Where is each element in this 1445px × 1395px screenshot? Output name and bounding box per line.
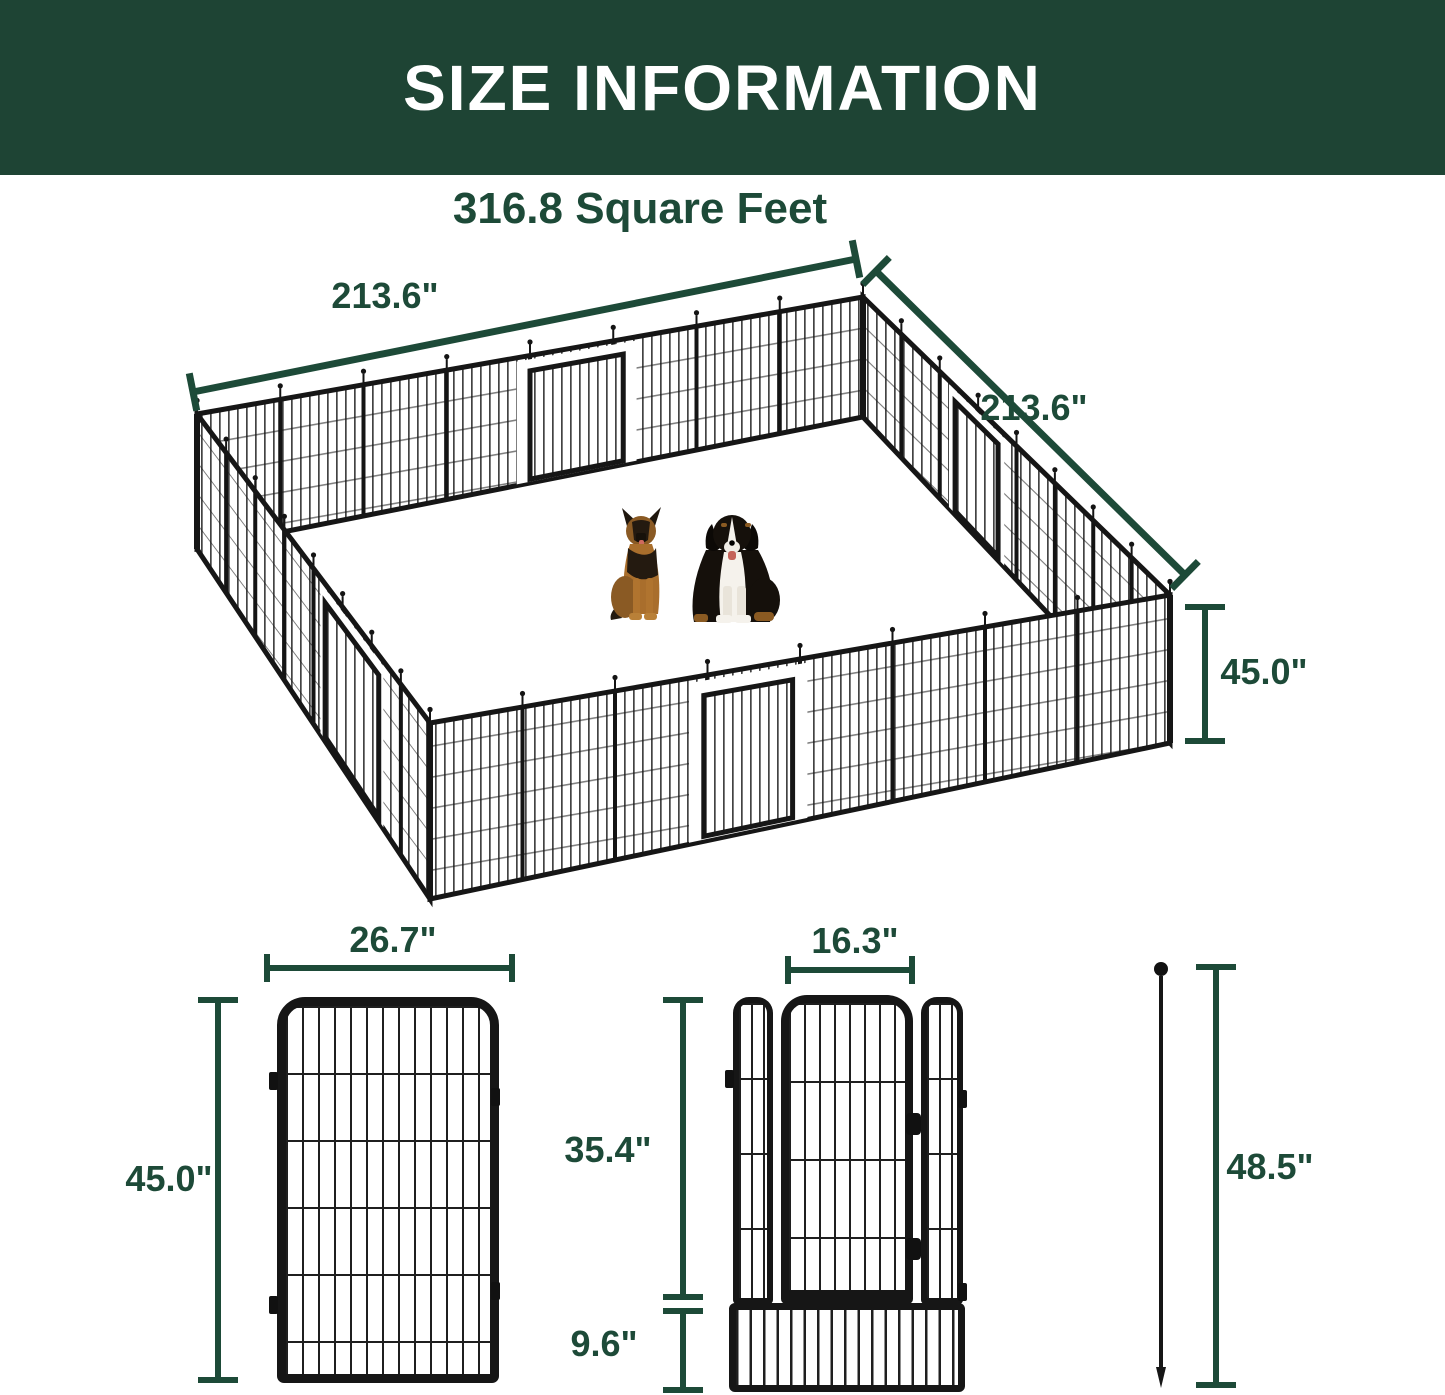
gate-connector-tab <box>725 1070 734 1088</box>
header-banner: SIZE INFORMATION <box>0 0 1445 175</box>
bernese-mountain-dog <box>693 515 781 623</box>
gate-bottom-panel <box>729 1303 965 1392</box>
gate-connector-tab <box>958 1283 967 1301</box>
gate-connector-tab <box>958 1090 967 1108</box>
pen-width-label: 213.6" <box>331 275 438 317</box>
gate-door-width-label: 16.3" <box>811 920 898 962</box>
gate-hinge <box>906 1238 921 1260</box>
panel-connector-tab <box>491 1282 500 1300</box>
pen-height-dimension-line <box>1185 604 1225 744</box>
pen-back-wall <box>860 281 1172 743</box>
pen-front-wall <box>427 579 1172 899</box>
size-information-infographic: SIZE INFORMATION 316.8 Square Feet <box>0 0 1445 1395</box>
panel-height-label: 45.0" <box>125 1158 212 1200</box>
gate-upper-height-label: 35.4" <box>564 1129 651 1171</box>
page-title: SIZE INFORMATION <box>403 51 1042 125</box>
pen-width-dimension-line <box>189 240 859 410</box>
gate-upper-height-dimension-line <box>663 997 703 1300</box>
stake-height-label: 48.5" <box>1226 1146 1313 1188</box>
pen-depth-label: 213.6" <box>980 387 1087 429</box>
gate-lower-height-dimension-line <box>663 1308 703 1393</box>
area-label: 316.8 Square Feet <box>453 184 827 234</box>
panel-connector-tab <box>491 1088 500 1106</box>
gate-lower-height-label: 9.6" <box>570 1323 637 1365</box>
german-shepherd-dog <box>611 507 661 620</box>
panel-connector-tab <box>269 1072 278 1090</box>
pen-back-wall <box>194 281 865 549</box>
ground-stake <box>1159 976 1163 1368</box>
gate-side-panel-left <box>733 997 773 1304</box>
dogs-illustration <box>611 507 780 623</box>
panel-connector-tab <box>269 1296 278 1314</box>
panel-width-label: 26.7" <box>349 919 436 961</box>
gate-door <box>781 995 913 1304</box>
panel-front-view <box>277 997 499 1383</box>
gate-side-panel-right <box>921 997 963 1304</box>
pen-height-label: 45.0" <box>1220 651 1307 693</box>
gate-hinge <box>906 1113 921 1135</box>
pen-front-wall <box>194 398 432 899</box>
